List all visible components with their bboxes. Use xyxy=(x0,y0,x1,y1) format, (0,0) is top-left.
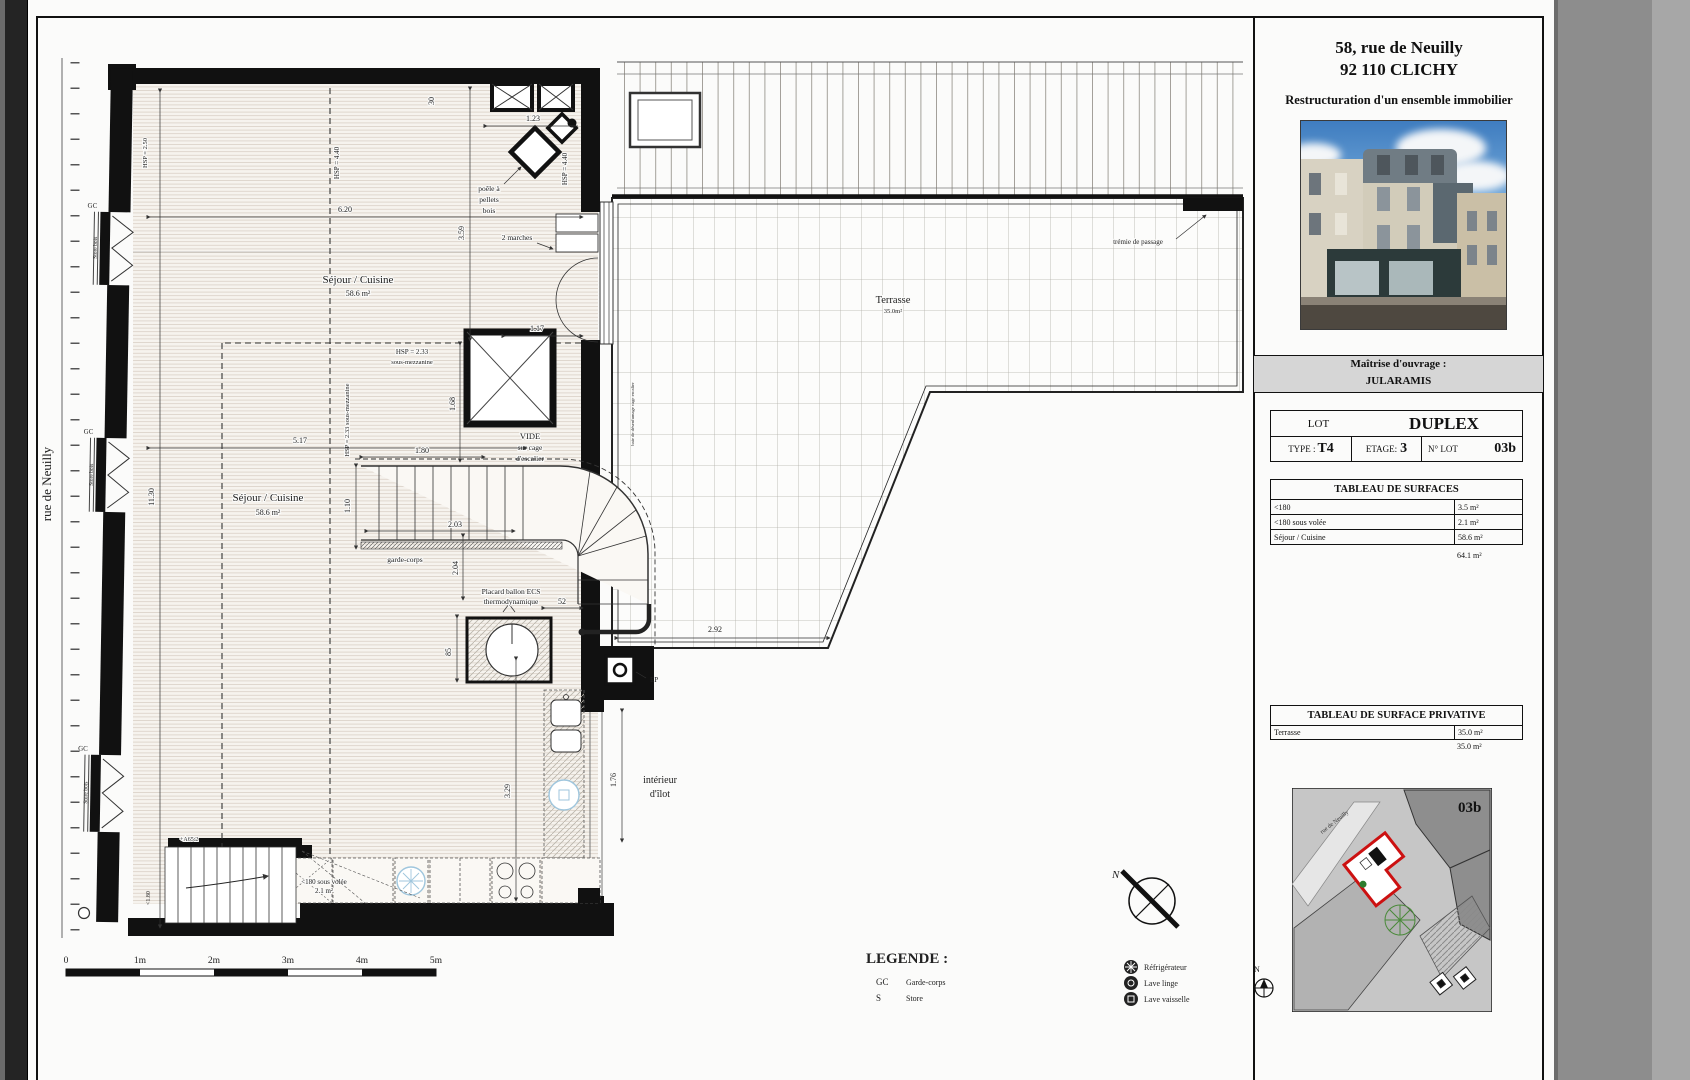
legend-dishwasher-label: Lave vaisselle xyxy=(1144,995,1190,1004)
dim-517: 5.17 xyxy=(293,436,307,445)
numlot-value: 03b xyxy=(1494,441,1516,457)
scale-5m: 5m xyxy=(430,956,443,966)
sejour-label-2: Séjour / Cuisine xyxy=(233,492,304,504)
site-lot-number: 03b xyxy=(1458,800,1481,816)
hsp-mezz-label-1: HSP = 2.33 xyxy=(396,348,429,356)
dim-117: 1.17 xyxy=(530,324,544,333)
hsp440-label-1: HSP = 4.40 xyxy=(333,146,341,179)
surface-row-label: Séjour / Cuisine xyxy=(1271,530,1454,544)
legend-fridge-label: Réfrigérateur xyxy=(1144,963,1187,972)
vide-stairwell xyxy=(467,332,553,424)
stove-label-3: bois xyxy=(483,206,496,215)
store-bois-label: Store bois xyxy=(83,782,89,804)
stove-label-1: poêle à xyxy=(478,184,500,193)
placard-label-2: thermodynamique xyxy=(484,597,539,606)
lot-value: DUPLEX xyxy=(1366,411,1522,436)
dim-1130: 11.30 xyxy=(147,488,156,506)
dim-204: 2.04 xyxy=(451,561,460,575)
roof-area xyxy=(617,62,1243,196)
legend-code-s: S xyxy=(876,993,881,1003)
sink-bowl-1 xyxy=(551,700,581,726)
surface-row-label: <180 xyxy=(1271,500,1454,514)
surfaces-table: TABLEAU DE SURFACES <180 3.5 m² <180 sou… xyxy=(1270,479,1523,545)
north-compass: N xyxy=(1111,869,1178,927)
garde-corps-label: garde-corps xyxy=(387,555,422,564)
dim-203: 2.03 xyxy=(448,520,462,529)
viewer-right-strip xyxy=(1554,0,1690,1080)
project-subtitle: Restructuration d'un ensemble immobilier xyxy=(1255,93,1543,108)
legend-label-gc: Garde-corps xyxy=(906,978,946,987)
plan-sheet-canvas: rue de Neuilly Terrasse 35.0m² trémie de… xyxy=(0,0,1690,1080)
lot-label: LOT xyxy=(1271,411,1366,436)
terrace xyxy=(600,196,1243,648)
roof-skylight xyxy=(630,93,700,147)
ep-label: EP xyxy=(650,676,658,684)
vide-label-2: sur cage xyxy=(518,443,543,452)
scale-2m: 2m xyxy=(208,956,221,966)
surface-row-value: 3.5 m² xyxy=(1454,500,1522,514)
surfaces-total: 64.1 m² xyxy=(1457,551,1527,560)
numlot-label: N° LOT xyxy=(1428,444,1458,454)
sink-bowl-2 xyxy=(551,730,581,752)
store-bois-label: Store bois xyxy=(89,464,95,486)
fridge-legend-icon xyxy=(1124,960,1138,974)
hsp-mezz-label-2: sous-mezzanine xyxy=(391,359,433,366)
scale-1m: 1m xyxy=(134,956,147,966)
baie-desenfumage-label: baie de désenfumage cage escalier xyxy=(630,382,635,446)
entry-stair xyxy=(165,847,296,923)
gc-label: GC xyxy=(84,428,94,436)
dim-180: 1.80 xyxy=(415,446,429,455)
sejour-area-1: 58.6 m² xyxy=(346,289,371,298)
terrace-area-label: 35.0m² xyxy=(884,308,902,315)
private-row-label: Terrasse xyxy=(1271,726,1454,739)
lot-table: LOT DUPLEX TYPE : T4 ETAGE: 3 N° LOT 03b xyxy=(1270,410,1523,462)
sejour-area-2: 58.6 m² xyxy=(256,508,281,517)
stove-label-2: pellets xyxy=(479,195,499,204)
scale-bar: 0 1m 2m 3m 4m 5m xyxy=(64,956,443,976)
tremie-label: trémie de passage xyxy=(1113,238,1163,246)
gc-label: GC xyxy=(78,745,88,753)
floor-plan-drawing: rue de Neuilly Terrasse 35.0m² trémie de… xyxy=(0,0,1253,1080)
scale-4m: 4m xyxy=(356,956,369,966)
legend-code-gc: GC xyxy=(876,977,889,987)
washer-legend-icon xyxy=(1124,976,1138,990)
dim-123: 1.23 xyxy=(526,114,540,123)
dim-168: 1.68 xyxy=(448,397,457,411)
placard-label-1: Placard ballon ECS xyxy=(482,587,541,596)
sous-volee-area: 2.1 m² xyxy=(315,887,333,895)
private-total: 35.0 m² xyxy=(1457,742,1527,751)
dim-52: 52 xyxy=(558,597,566,606)
ilot-label-2: d'îlot xyxy=(650,789,670,800)
dim-292: 2.92 xyxy=(708,625,722,634)
vide-label-1: VIDE xyxy=(520,431,540,441)
compass-north-label: N xyxy=(1111,869,1120,881)
type-value: T4 xyxy=(1317,441,1333,457)
scale-3m: 3m xyxy=(282,956,295,966)
legend-washer-label: Lave linge xyxy=(1144,979,1178,988)
kitchen-column xyxy=(544,690,584,858)
etage-label: ETAGE: xyxy=(1366,444,1397,454)
building-photo xyxy=(1300,120,1507,330)
surface-row-value: 2.1 m² xyxy=(1454,515,1522,529)
dishwasher-icon xyxy=(549,780,579,810)
private-table-title: TABLEAU DE SURFACE PRIVATIVE xyxy=(1271,706,1522,725)
marches-label: 2 marches xyxy=(502,233,533,242)
hsp-mezz-rot-label: HSP = 2.33 sous-mezzanine xyxy=(344,383,351,456)
dim-85: 85 xyxy=(444,648,453,656)
vide-label-3: d'escalier xyxy=(516,454,545,463)
titleblock-divider xyxy=(1253,16,1255,1080)
client-band: Maîtrise d'ouvrage : JULARAMIS xyxy=(1254,355,1543,393)
legend-label-s: Store xyxy=(906,994,923,1003)
dim-329: 3.29 xyxy=(503,784,512,798)
surfaces-table-title: TABLEAU DE SURFACES xyxy=(1271,480,1522,499)
dim-110: 1.10 xyxy=(343,499,352,513)
surface-row-label: <180 sous volée xyxy=(1271,515,1454,529)
sejour-label-1: Séjour / Cuisine xyxy=(323,274,394,286)
etage-value: 3 xyxy=(1400,441,1407,457)
level-label: +A65.2 xyxy=(180,837,198,843)
dim-620: 6.20 xyxy=(338,205,352,214)
project-address-line2: 92 110 CLICHY xyxy=(1255,60,1543,80)
dim-30: 30 xyxy=(427,97,436,105)
dim-359: 3.59 xyxy=(457,226,466,240)
client-label: Maîtrise d'ouvrage : xyxy=(1254,356,1543,373)
street-lines xyxy=(62,58,90,938)
site-map: 03b rue de Neuilly xyxy=(1292,788,1492,1012)
site-tree xyxy=(1385,905,1415,935)
gc-label: GC xyxy=(88,202,98,210)
scale-0: 0 xyxy=(64,956,69,966)
legend: LEGENDE : GC Garde-corps S Store Réfrigé… xyxy=(866,951,1190,1006)
surface-row-value: 58.6 m² xyxy=(1454,530,1522,544)
project-address-line1: 58, rue de Neuilly xyxy=(1255,38,1543,58)
ilot-label-1: intérieur xyxy=(643,775,678,786)
client-name: JULARAMIS xyxy=(1254,373,1543,390)
top-skylights xyxy=(492,84,573,110)
hsp180-label: <1.80 xyxy=(146,891,152,905)
dishwasher-legend-icon xyxy=(1124,992,1138,1006)
legend-title: LEGENDE : xyxy=(866,951,948,967)
type-label: TYPE : xyxy=(1288,444,1315,454)
hsp440-label-2: HSP = 4.40 xyxy=(561,152,569,185)
street-name-label: rue de Neuilly xyxy=(39,446,54,521)
private-surface-table: TABLEAU DE SURFACE PRIVATIVE Terrasse 35… xyxy=(1270,705,1523,740)
site-map-compass: N xyxy=(1248,960,1288,1010)
dim-176: 1.76 xyxy=(609,773,618,787)
terrace-glazing xyxy=(600,202,613,344)
private-row-value: 35.0 m² xyxy=(1454,726,1522,739)
store-bois-label: Store bois xyxy=(93,237,99,259)
site-compass-north: N xyxy=(1254,965,1260,974)
terrace-label: Terrasse xyxy=(876,295,911,306)
frame-right xyxy=(1542,16,1544,1080)
window-2: GC Store bois xyxy=(82,428,129,513)
hsp250-label: HSP = 2.50 xyxy=(142,138,149,168)
window-3: GC Store bois xyxy=(77,745,125,833)
window-1: GC Store bois xyxy=(86,202,133,286)
sous-volee-label: <180 sous volée xyxy=(301,878,347,886)
